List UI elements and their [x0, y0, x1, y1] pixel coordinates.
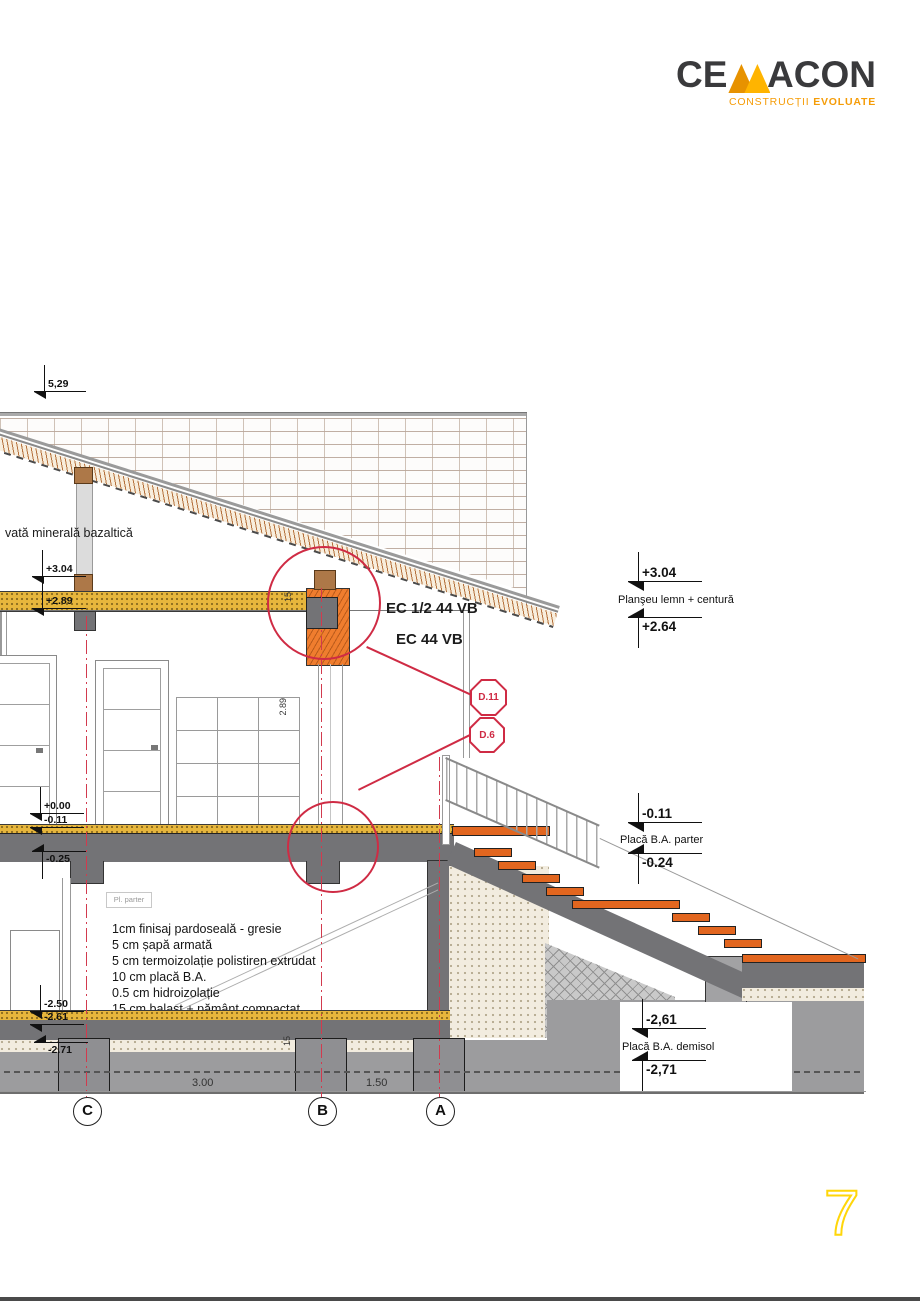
level-marker-271-right: -2,71: [632, 1060, 706, 1078]
floor-layers-note: 1cm finisaj pardoseală - gresie 5 cm șap…: [112, 921, 316, 1017]
stair-tread: [498, 861, 536, 870]
level-marker-000: +0.00: [30, 800, 84, 814]
stair-tread: [522, 874, 560, 883]
level-marker-261-right: -2,61: [632, 1012, 706, 1029]
stair-tread: [672, 913, 710, 922]
logo-m-icon: [728, 64, 766, 93]
gable-right-edge: [526, 413, 527, 607]
insulation-label: vată minerală bazaltică: [5, 526, 133, 540]
level-marker-025: -0.25: [32, 851, 86, 866]
ec-label-2: EC 44 VB: [396, 631, 463, 648]
demisol-door-frame-1: [62, 878, 63, 1018]
dim-3-00: 3.00: [192, 1077, 213, 1089]
room-label-box: Pl. parter: [106, 892, 152, 908]
stair-tread: [474, 848, 512, 857]
detail-marker-d11-label: D.11: [478, 692, 499, 703]
page-number: 7: [824, 1176, 860, 1250]
floor-layer-line: 10 cm placă B.A.: [112, 969, 316, 985]
detail-circle-eaves: [267, 546, 381, 660]
level-marker-261-left: -2.61: [30, 1011, 84, 1025]
door-handle-2: [151, 745, 158, 750]
floor-layer-line: 0.5 cm hidroizolație: [112, 985, 316, 1001]
terrace-stipple: [742, 988, 864, 1001]
axis-line-a: [439, 757, 441, 1097]
dim-1-50: 1.50: [366, 1077, 387, 1089]
detail-marker-d6-label: D.6: [479, 730, 495, 741]
level-marker-024-right: -0.24: [628, 853, 702, 871]
demisol-door-frame-2: [70, 878, 71, 1018]
stair-railing-elevation: [176, 697, 300, 834]
floor-layer-line: 5 cm termoizolație polistiren extrudat: [112, 953, 316, 969]
stair-landing: [572, 900, 680, 909]
wall-line-1: [318, 664, 319, 826]
floor-layer-line: 1cm finisaj pardoseală - gresie: [112, 921, 316, 937]
stair-tread: [724, 939, 762, 948]
level-marker-011-left: -0.11: [30, 814, 84, 828]
axis-bubble-b: B: [308, 1097, 337, 1126]
level-marker-264-right: +2.64: [628, 617, 702, 635]
logo-wordmark: CE ACON: [676, 56, 876, 93]
label-planseu-lemn: Planşeu lemn + centură: [618, 594, 734, 606]
logo-tagline: CONSTRUCȚII EVOLUATE: [676, 96, 876, 108]
terrace-slab: [742, 960, 864, 990]
level-marker-271-left: -2.71: [34, 1042, 88, 1057]
axis-bubble-c: C: [73, 1097, 102, 1126]
stair-tread: [698, 926, 736, 935]
stair-tread: [546, 887, 584, 896]
document-page: CE ACON CONSTRUCȚII EVOLUATE: [0, 0, 920, 1301]
company-logo: CE ACON CONSTRUCȚII EVOLUATE: [676, 56, 876, 108]
dim-attic-289: 2.89: [278, 698, 288, 716]
level-marker-011-right: -0.11: [628, 806, 702, 823]
level-marker-250: -2.50: [30, 998, 84, 1012]
logo-text-acon: ACON: [767, 56, 876, 93]
level-marker-304-right: +3.04: [628, 565, 702, 582]
dim-footing-15: 15: [282, 1036, 292, 1046]
detail-marker-d6: D.6: [469, 717, 505, 753]
level-marker-289-left: +2.89: [32, 595, 86, 609]
detail-marker-d11: D.11: [470, 679, 507, 716]
page-bottom-edge: [0, 1297, 920, 1301]
logo-tagline-bold: EVOLUATE: [813, 96, 876, 108]
axis-bubble-a: A: [426, 1097, 455, 1126]
dim-eaves-15: 15: [283, 592, 293, 602]
gable-top-edge: [0, 412, 527, 416]
ec-label-1: EC 1/2 44 VB: [386, 600, 478, 617]
level-marker-ridge: 5,29: [34, 378, 86, 392]
dimension-line: [0, 1091, 866, 1092]
door-handle-1: [36, 748, 43, 753]
floor-layer-line: 5 cm șapă armată: [112, 937, 316, 953]
logo-text-ce: CE: [676, 56, 727, 93]
wood-block-top: [74, 467, 93, 484]
leader-line-d11: [366, 646, 471, 695]
axis-line-b: [321, 588, 323, 1097]
logo-tagline-regular: CONSTRUCȚII: [729, 96, 813, 108]
terrace-finish: [742, 954, 866, 963]
level-marker-304-left: +3.04: [32, 563, 86, 577]
detail-circle-slab: [287, 801, 379, 893]
